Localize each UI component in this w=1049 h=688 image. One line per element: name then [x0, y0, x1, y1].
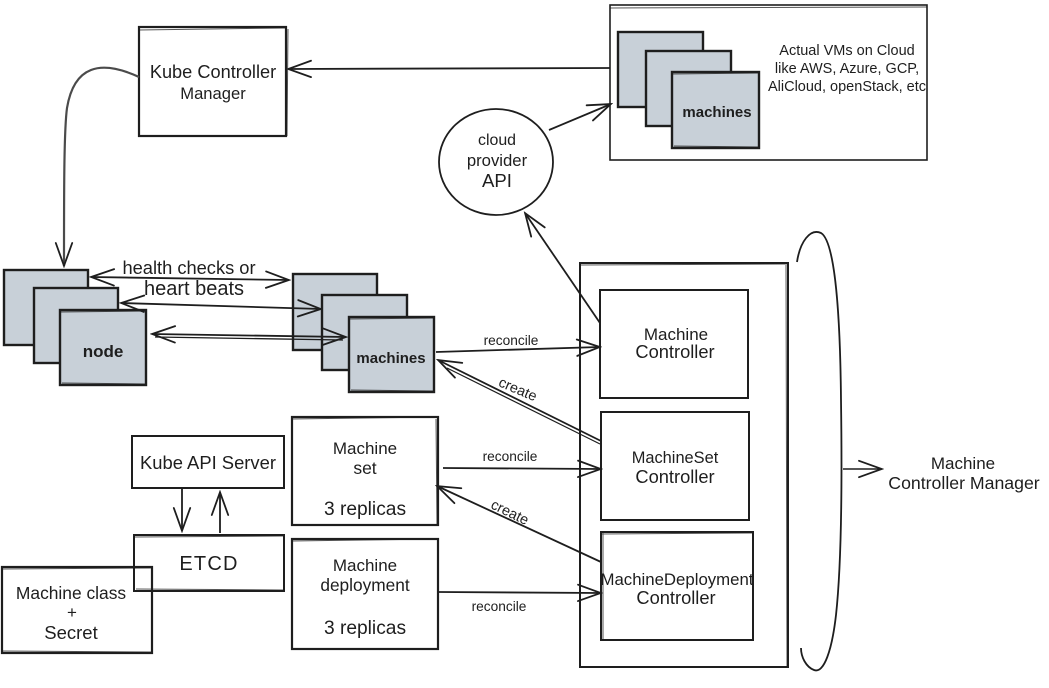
- svg-text:3 replicas: 3 replicas: [324, 499, 406, 520]
- svg-text:Controller: Controller: [635, 341, 714, 362]
- svg-text:Manager: Manager: [180, 84, 246, 103]
- svg-text:Controller: Controller: [635, 466, 714, 487]
- svg-text:machines: machines: [682, 104, 751, 121]
- svg-text:Machine: Machine: [333, 439, 397, 458]
- svg-text:provider: provider: [467, 151, 528, 170]
- svg-text:node: node: [83, 342, 124, 361]
- svg-text:ETCD: ETCD: [179, 553, 238, 575]
- svg-text:Kube Controller: Kube Controller: [150, 62, 276, 82]
- svg-text:Machine: Machine: [333, 556, 397, 575]
- svg-text:cloud: cloud: [478, 132, 516, 149]
- svg-text:AliCloud, openStack, etc: AliCloud, openStack, etc: [768, 79, 926, 95]
- svg-text:Machine: Machine: [931, 454, 995, 473]
- svg-text:set: set: [353, 458, 376, 478]
- svg-text:machines: machines: [356, 350, 425, 367]
- svg-text:Secret: Secret: [44, 622, 97, 643]
- svg-text:Controller Manager: Controller Manager: [888, 473, 1040, 493]
- svg-text:+: +: [67, 603, 77, 622]
- svg-text:3 replicas: 3 replicas: [324, 618, 406, 639]
- svg-text:like AWS, Azure, GCP,: like AWS, Azure, GCP,: [775, 61, 919, 77]
- svg-text:Actual VMs on Cloud: Actual VMs on Cloud: [779, 43, 914, 59]
- svg-text:Controller: Controller: [636, 587, 715, 608]
- svg-text:MachineSet: MachineSet: [632, 449, 719, 467]
- svg-text:reconcile: reconcile: [472, 599, 527, 614]
- svg-text:deployment: deployment: [320, 575, 410, 595]
- svg-text:reconcile: reconcile: [483, 449, 538, 464]
- svg-text:Kube API Server: Kube API Server: [140, 452, 276, 473]
- svg-text:health checks or: health checks or: [122, 257, 255, 278]
- svg-text:reconcile: reconcile: [484, 333, 539, 348]
- svg-text:API: API: [482, 170, 512, 191]
- svg-text:create: create: [488, 497, 531, 529]
- svg-text:heart beats: heart beats: [144, 278, 244, 300]
- svg-text:Machine class: Machine class: [16, 583, 126, 603]
